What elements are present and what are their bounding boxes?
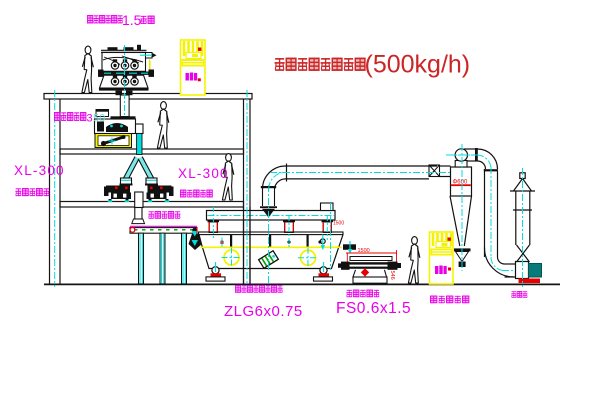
svg-text:3: 3 (87, 113, 93, 125)
svg-text:XL-300: XL-300 (14, 163, 65, 178)
svg-text:1500: 1500 (358, 248, 370, 254)
svg-text:1.5: 1.5 (122, 12, 142, 28)
svg-text:1500: 1500 (333, 221, 344, 227)
svg-text:ZLG6x0.75: ZLG6x0.75 (224, 303, 303, 320)
svg-text:FS0.6x1.5: FS0.6x1.5 (336, 300, 411, 317)
svg-text:XL-300: XL-300 (178, 166, 229, 181)
svg-text:(500kg/h): (500kg/h) (365, 51, 471, 79)
svg-text:546: 546 (389, 271, 395, 280)
svg-text:Φ600: Φ600 (453, 180, 468, 186)
svg-text:50: 50 (93, 113, 105, 125)
